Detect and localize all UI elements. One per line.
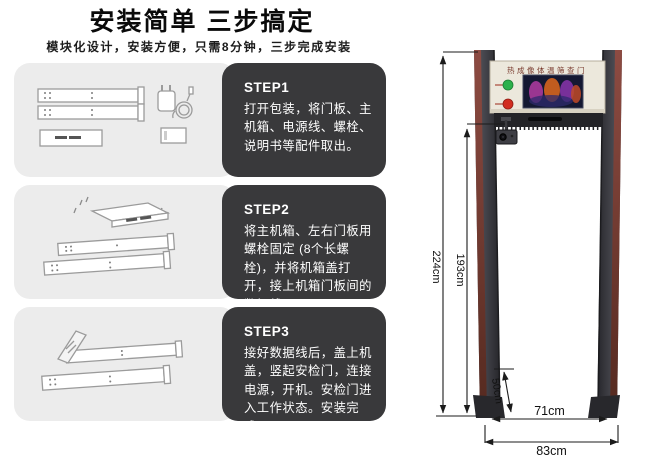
right-foot	[588, 395, 620, 418]
step2-text-panel: STEP2 将主机箱、左右门板用螺栓固定 (8个长螺栓)，并将机箱盖打开，接上机…	[222, 185, 386, 299]
step1-illustration-panel	[14, 63, 236, 177]
main-unit-box	[92, 203, 168, 227]
step1-text-panel: STEP1 打开包装，将门板、主机箱、电源线、螺栓、说明书等配件取出。	[222, 63, 386, 177]
page-subtitle: 模块化设计，安装方便，只需8分钟，三步完成安装	[8, 38, 390, 55]
manual-icon	[161, 128, 186, 143]
step3-description: 接好数据线后，盖上机盖，竖起安检门，连接电源，开机。安检门进入工作状态。安装完成…	[244, 344, 376, 436]
green-indicator-light	[503, 80, 513, 90]
step3-text-panel: STEP3 接好数据线后，盖上机盖，竖起安检门，连接电源，开机。安检门进入工作状…	[222, 307, 386, 421]
step-card-3: STEP3 接好数据线后，盖上机盖，竖起安检门，连接电源，开机。安检门进入工作状…	[14, 307, 386, 421]
step1-description: 打开包装，将门板、主机箱、电源线、螺栓、说明书等配件取出。	[244, 100, 376, 155]
inner-width-label: 71cm	[534, 404, 565, 418]
step1-unpack-illustration	[22, 67, 218, 173]
step3-finish-illustration	[22, 311, 218, 417]
page-title: 安装简单 三步搞定	[14, 2, 390, 38]
opening-height-label: 193cm	[454, 253, 466, 286]
thermal-display-screen	[523, 75, 583, 108]
total-height-label: 224cm	[430, 250, 442, 283]
step-card-2: STEP2 将主机箱、左右门板用螺栓固定 (8个长螺栓)，并将机箱盖打开，接上机…	[14, 185, 386, 299]
step2-label: STEP2	[244, 202, 376, 217]
door-nameplate: 热成像体温筛查门	[507, 65, 587, 75]
step1-label: STEP1	[244, 80, 376, 95]
page: 安装简单 三步搞定 模块化设计，安装方便，只需8分钟，三步完成安装	[0, 0, 649, 467]
speaker-slot	[528, 117, 562, 121]
outer-width-label: 83cm	[536, 444, 567, 458]
door-panel-upper	[66, 341, 183, 365]
step3-label: STEP3	[244, 324, 376, 339]
door-panel-lower	[42, 365, 171, 392]
red-indicator-light	[503, 99, 513, 109]
step3-illustration-panel	[14, 307, 236, 421]
power-adapter-icon	[158, 85, 193, 118]
step-card-1: STEP1 打开包装，将门板、主机箱、电源线、螺栓、说明书等配件取出。	[14, 63, 386, 177]
step2-illustration-panel	[14, 185, 236, 299]
step2-description: 将主机箱、左右门板用螺栓固定 (8个长螺栓)，并将机箱盖打开，接上机箱门板间的数…	[244, 222, 376, 314]
step2-assembly-illustration	[22, 189, 218, 295]
security-door-diagram: 热成像体温筛查门	[424, 24, 649, 464]
